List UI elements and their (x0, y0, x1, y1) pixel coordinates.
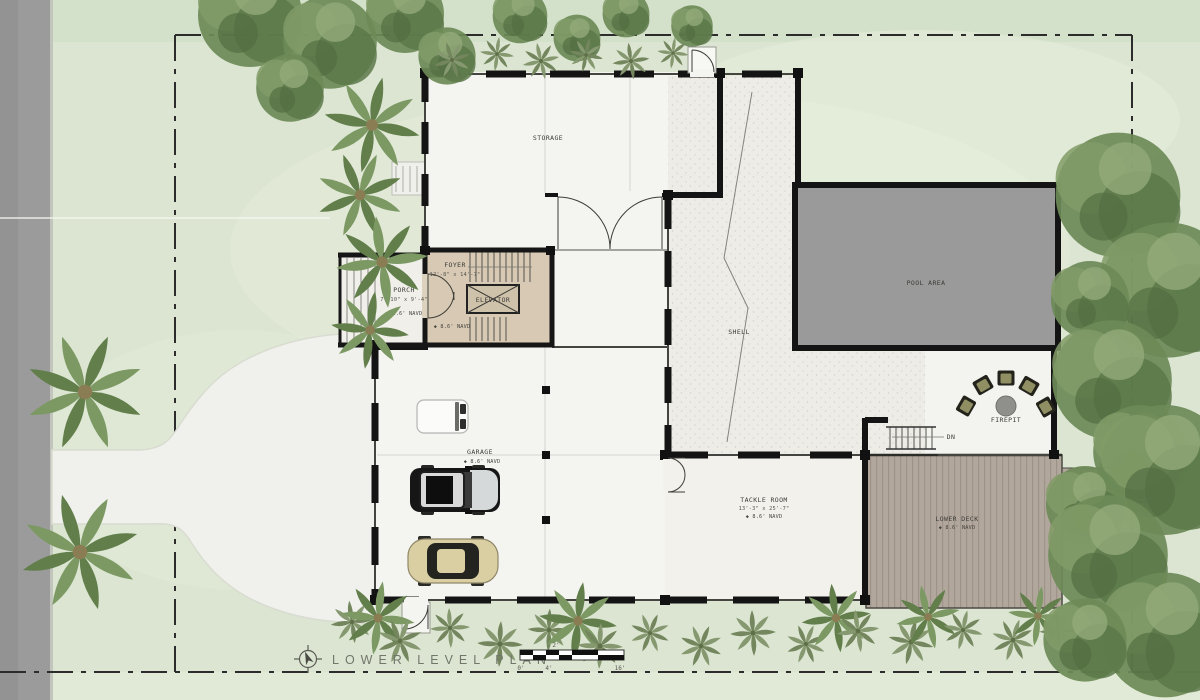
tackle-room-dims: 13'-3" x 25'-7" (739, 506, 790, 512)
car-golf-cart (417, 400, 468, 433)
stairs-dn-label: DN (947, 433, 956, 441)
tree (256, 54, 324, 122)
foyer-label: FOYER (444, 261, 466, 269)
car-sedan (408, 536, 498, 586)
storage-label: STORAGE (533, 134, 563, 142)
elevator-label: ELEVATOR (476, 296, 511, 304)
car-suv (410, 465, 500, 515)
firepit-terrace-floor (925, 348, 1056, 455)
top-entry-pad (688, 47, 716, 77)
pool-area-label: POOL AREA (907, 279, 946, 287)
firepit-label: FIREPIT (991, 416, 1021, 424)
shell-label: SHELL (728, 328, 750, 336)
lounge-chair (998, 371, 1015, 386)
site-plan-canvas: STORAGE FOYER 12'-8" x 14'-7" ◆ 8.6' NAV… (0, 0, 1200, 700)
scale-tick-4: 4' (545, 665, 552, 672)
tree (1043, 598, 1126, 681)
garage-label: GARAGE (467, 448, 493, 456)
scale-tick-0: 0' (517, 665, 524, 672)
lower-deck-label: LOWER DECK (935, 515, 978, 523)
tackle-elev-marker: ◆ 8.6' NAVD (746, 514, 783, 520)
deck-elev-marker: ◆ 8.6' NAVD (939, 525, 976, 531)
scale-tick-16: 16' (615, 665, 626, 672)
foyer-dims: 12'-8" x 14'-7" (430, 272, 481, 278)
tree (671, 5, 713, 47)
pool-area (795, 185, 1058, 348)
road (0, 0, 53, 700)
garage-elev-marker: ◆ 8.6' NAVD (464, 459, 501, 465)
tackle-room-floor (665, 455, 867, 601)
lower-deck (866, 455, 1062, 608)
foyer-elev-marker: ◆ 8.6' NAVD (434, 324, 471, 330)
firepit-circle (996, 396, 1016, 416)
scale-tick-2: 2' (552, 642, 559, 649)
tackle-room-label: TACKLE ROOM (740, 496, 787, 504)
